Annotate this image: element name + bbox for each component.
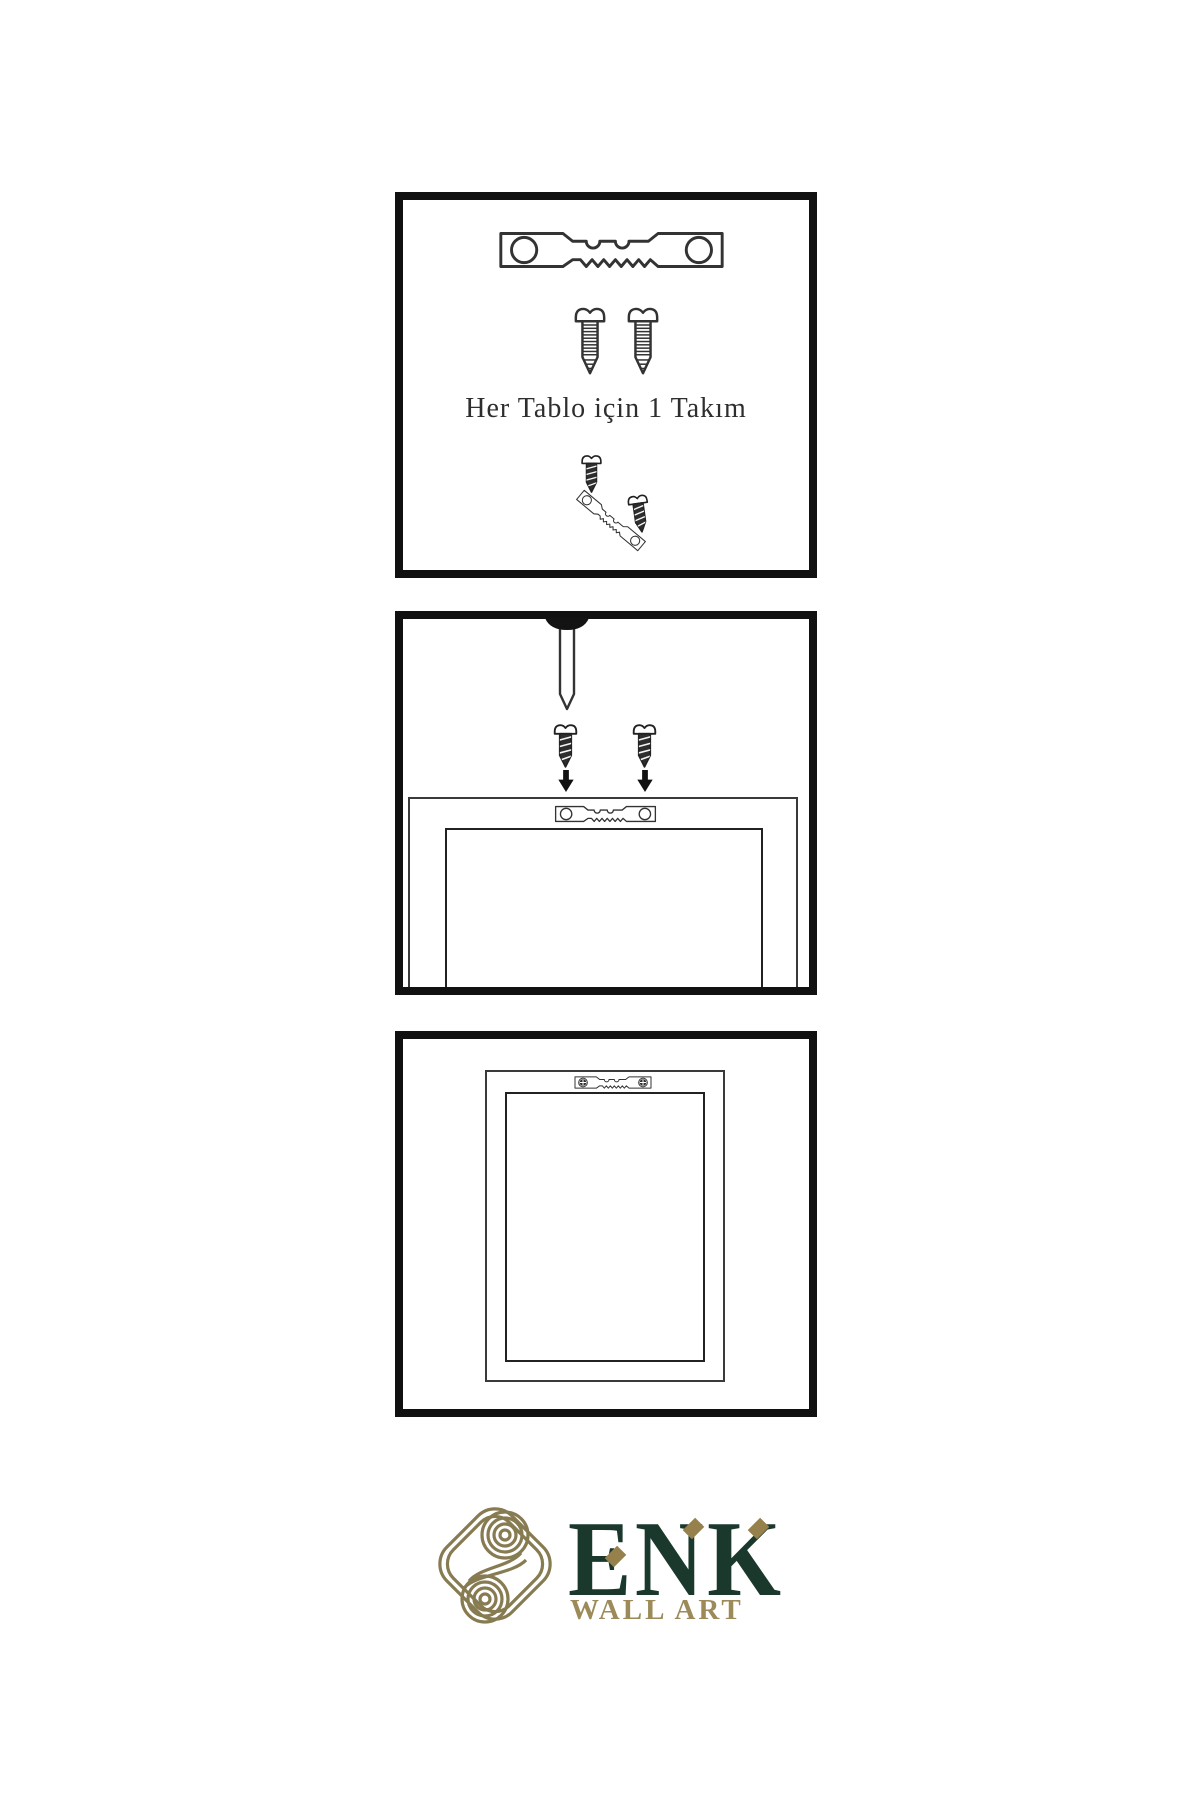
step-2-panel [395,611,817,995]
frame-back-inner-outline [445,828,763,987]
instruction-sheet: Her Tablo için 1 Takım ENK WALL ART [0,0,1200,1800]
wall-nail-icon [545,618,589,718]
screw-into-hanger-illustration [563,452,673,562]
fastened-sawtooth-hanger-icon [573,1072,653,1093]
screw-icon [625,493,653,536]
step-1-panel: Her Tablo için 1 Takım [395,192,817,578]
step-3-panel [395,1031,817,1417]
kit-caption: Her Tablo için 1 Takım [403,393,809,425]
down-arrow-icon [558,770,574,793]
knot-logo-icon [429,1499,561,1629]
screw-icon [629,723,660,769]
screw-icon [626,305,660,379]
sawtooth-hanger-icon [495,224,728,276]
hung-frame-inner-outline [505,1092,705,1362]
screw-icon [573,305,607,379]
sawtooth-hanger-on-frame-icon [553,802,658,826]
brand-subtitle: WALL ART [570,1594,744,1627]
down-arrow-icon [637,770,653,793]
screw-icon [550,723,581,769]
